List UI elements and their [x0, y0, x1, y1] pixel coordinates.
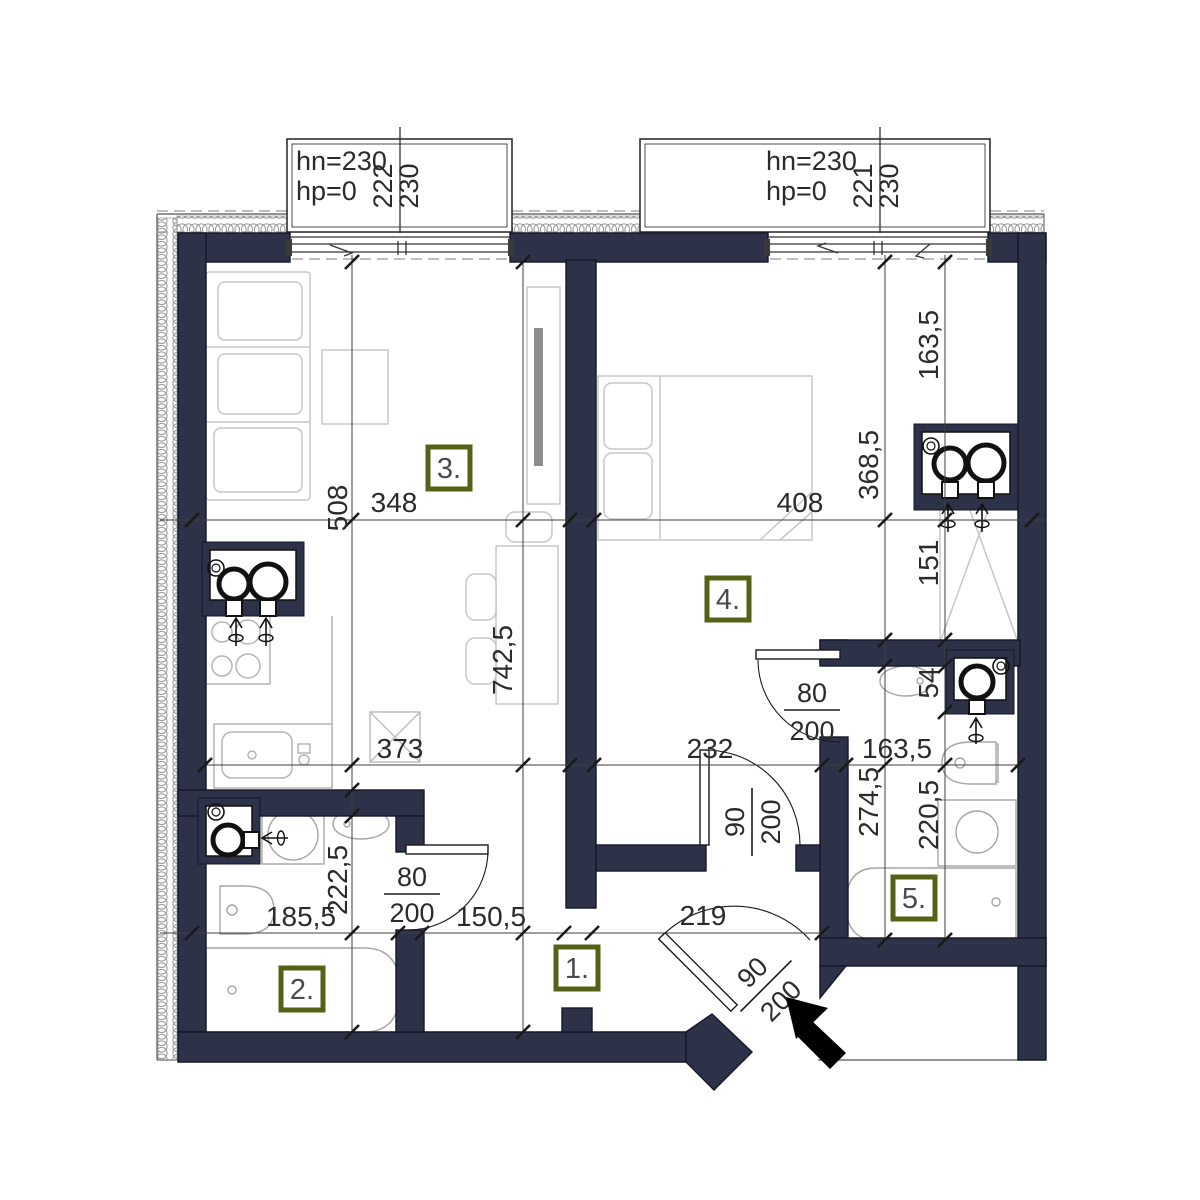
room-label-2: 2.	[281, 968, 323, 1010]
wall-left	[178, 233, 206, 1032]
room-1-number: 1.	[565, 953, 589, 985]
room-3-number: 3.	[437, 453, 461, 485]
room-label-5: 5.	[893, 877, 935, 919]
tv-board	[527, 287, 560, 504]
door-bath2-height: 200	[389, 898, 434, 928]
room-2-number: 2.	[290, 974, 314, 1006]
window-1-height: 230	[394, 163, 424, 208]
dim-348: 348	[371, 487, 418, 518]
coffee-table	[322, 350, 388, 424]
dim-232: 232	[687, 733, 734, 764]
dim-274-5: 274,5	[853, 767, 884, 837]
door-bath5-width: 80	[797, 678, 827, 708]
wall-top-mid	[510, 233, 768, 262]
dim-373: 373	[377, 733, 424, 764]
window-1-annotation: hn=230 hp=0 222 230	[287, 127, 512, 233]
dim-151: 151	[913, 540, 944, 587]
wall-main-vertical	[566, 260, 596, 908]
entrance-arrow-icon	[786, 997, 846, 1069]
door-bath2-width: 80	[397, 862, 427, 892]
dim-368-5: 368,5	[853, 430, 884, 500]
door-entrance-width: 90	[731, 951, 773, 993]
dim-408: 408	[777, 487, 824, 518]
wall-bath2-right-b	[396, 930, 424, 1032]
bath5-plumbing-box	[946, 650, 1014, 744]
dim-150-5: 150,5	[456, 901, 526, 932]
wall-bath5-bottom	[820, 938, 1046, 966]
dim-163-5-right: 163,5	[862, 733, 932, 764]
window-2-height: 230	[874, 163, 904, 208]
floor-plan-canvas: hn=230 hp=0 222 230 hn=230 hp=0 221 230	[0, 0, 1200, 1200]
wall-hall-bed-a	[596, 845, 706, 871]
window-2	[764, 237, 992, 258]
room-label-3: 3.	[428, 447, 470, 489]
window-2-hp: hp=0	[766, 176, 827, 206]
door-bedroom-height: 200	[756, 799, 786, 844]
room-label-4: 4.	[707, 578, 749, 620]
window-sash-mark	[330, 245, 352, 256]
floor-plan-drawing: hn=230 hp=0 222 230 hn=230 hp=0 221 230	[0, 0, 1200, 1200]
room-4-number: 4.	[716, 584, 740, 616]
wall-bottom-tip	[686, 1014, 752, 1090]
dim-163-5-top: 163,5	[913, 310, 944, 380]
kitchen-sink	[214, 724, 332, 788]
door-bedroom-width: 90	[720, 807, 750, 837]
room-5-number: 5.	[902, 883, 926, 915]
door-label-bedroom: 90 200	[720, 788, 786, 856]
dim-54: 54	[913, 667, 944, 698]
bath5-counter-sink	[938, 800, 1016, 866]
dim-508: 508	[322, 485, 353, 532]
door-bath5-height: 200	[789, 716, 834, 746]
window-1-hp: hp=0	[296, 176, 357, 206]
door-label-bath2: 80 200	[384, 862, 440, 928]
room-label-1: 1.	[556, 947, 598, 989]
window-2-hn: hn=230	[766, 146, 857, 176]
wall-right	[1018, 233, 1046, 1060]
window-1	[286, 237, 514, 256]
dim-220-5: 220,5	[913, 780, 944, 850]
wall-entrance-corner	[820, 966, 846, 998]
wall-bottom-stub	[562, 1008, 592, 1032]
wall-bottom	[178, 1032, 686, 1062]
dim-742-5: 742,5	[487, 625, 518, 695]
door-label-bath5: 80 200	[784, 678, 840, 746]
dim-222-5: 222,5	[322, 845, 353, 915]
dim-219: 219	[680, 900, 727, 931]
bath5-toilet	[942, 742, 998, 784]
sofa	[206, 272, 310, 500]
window-2-annotation: hn=230 hp=0 221 230	[640, 127, 990, 233]
